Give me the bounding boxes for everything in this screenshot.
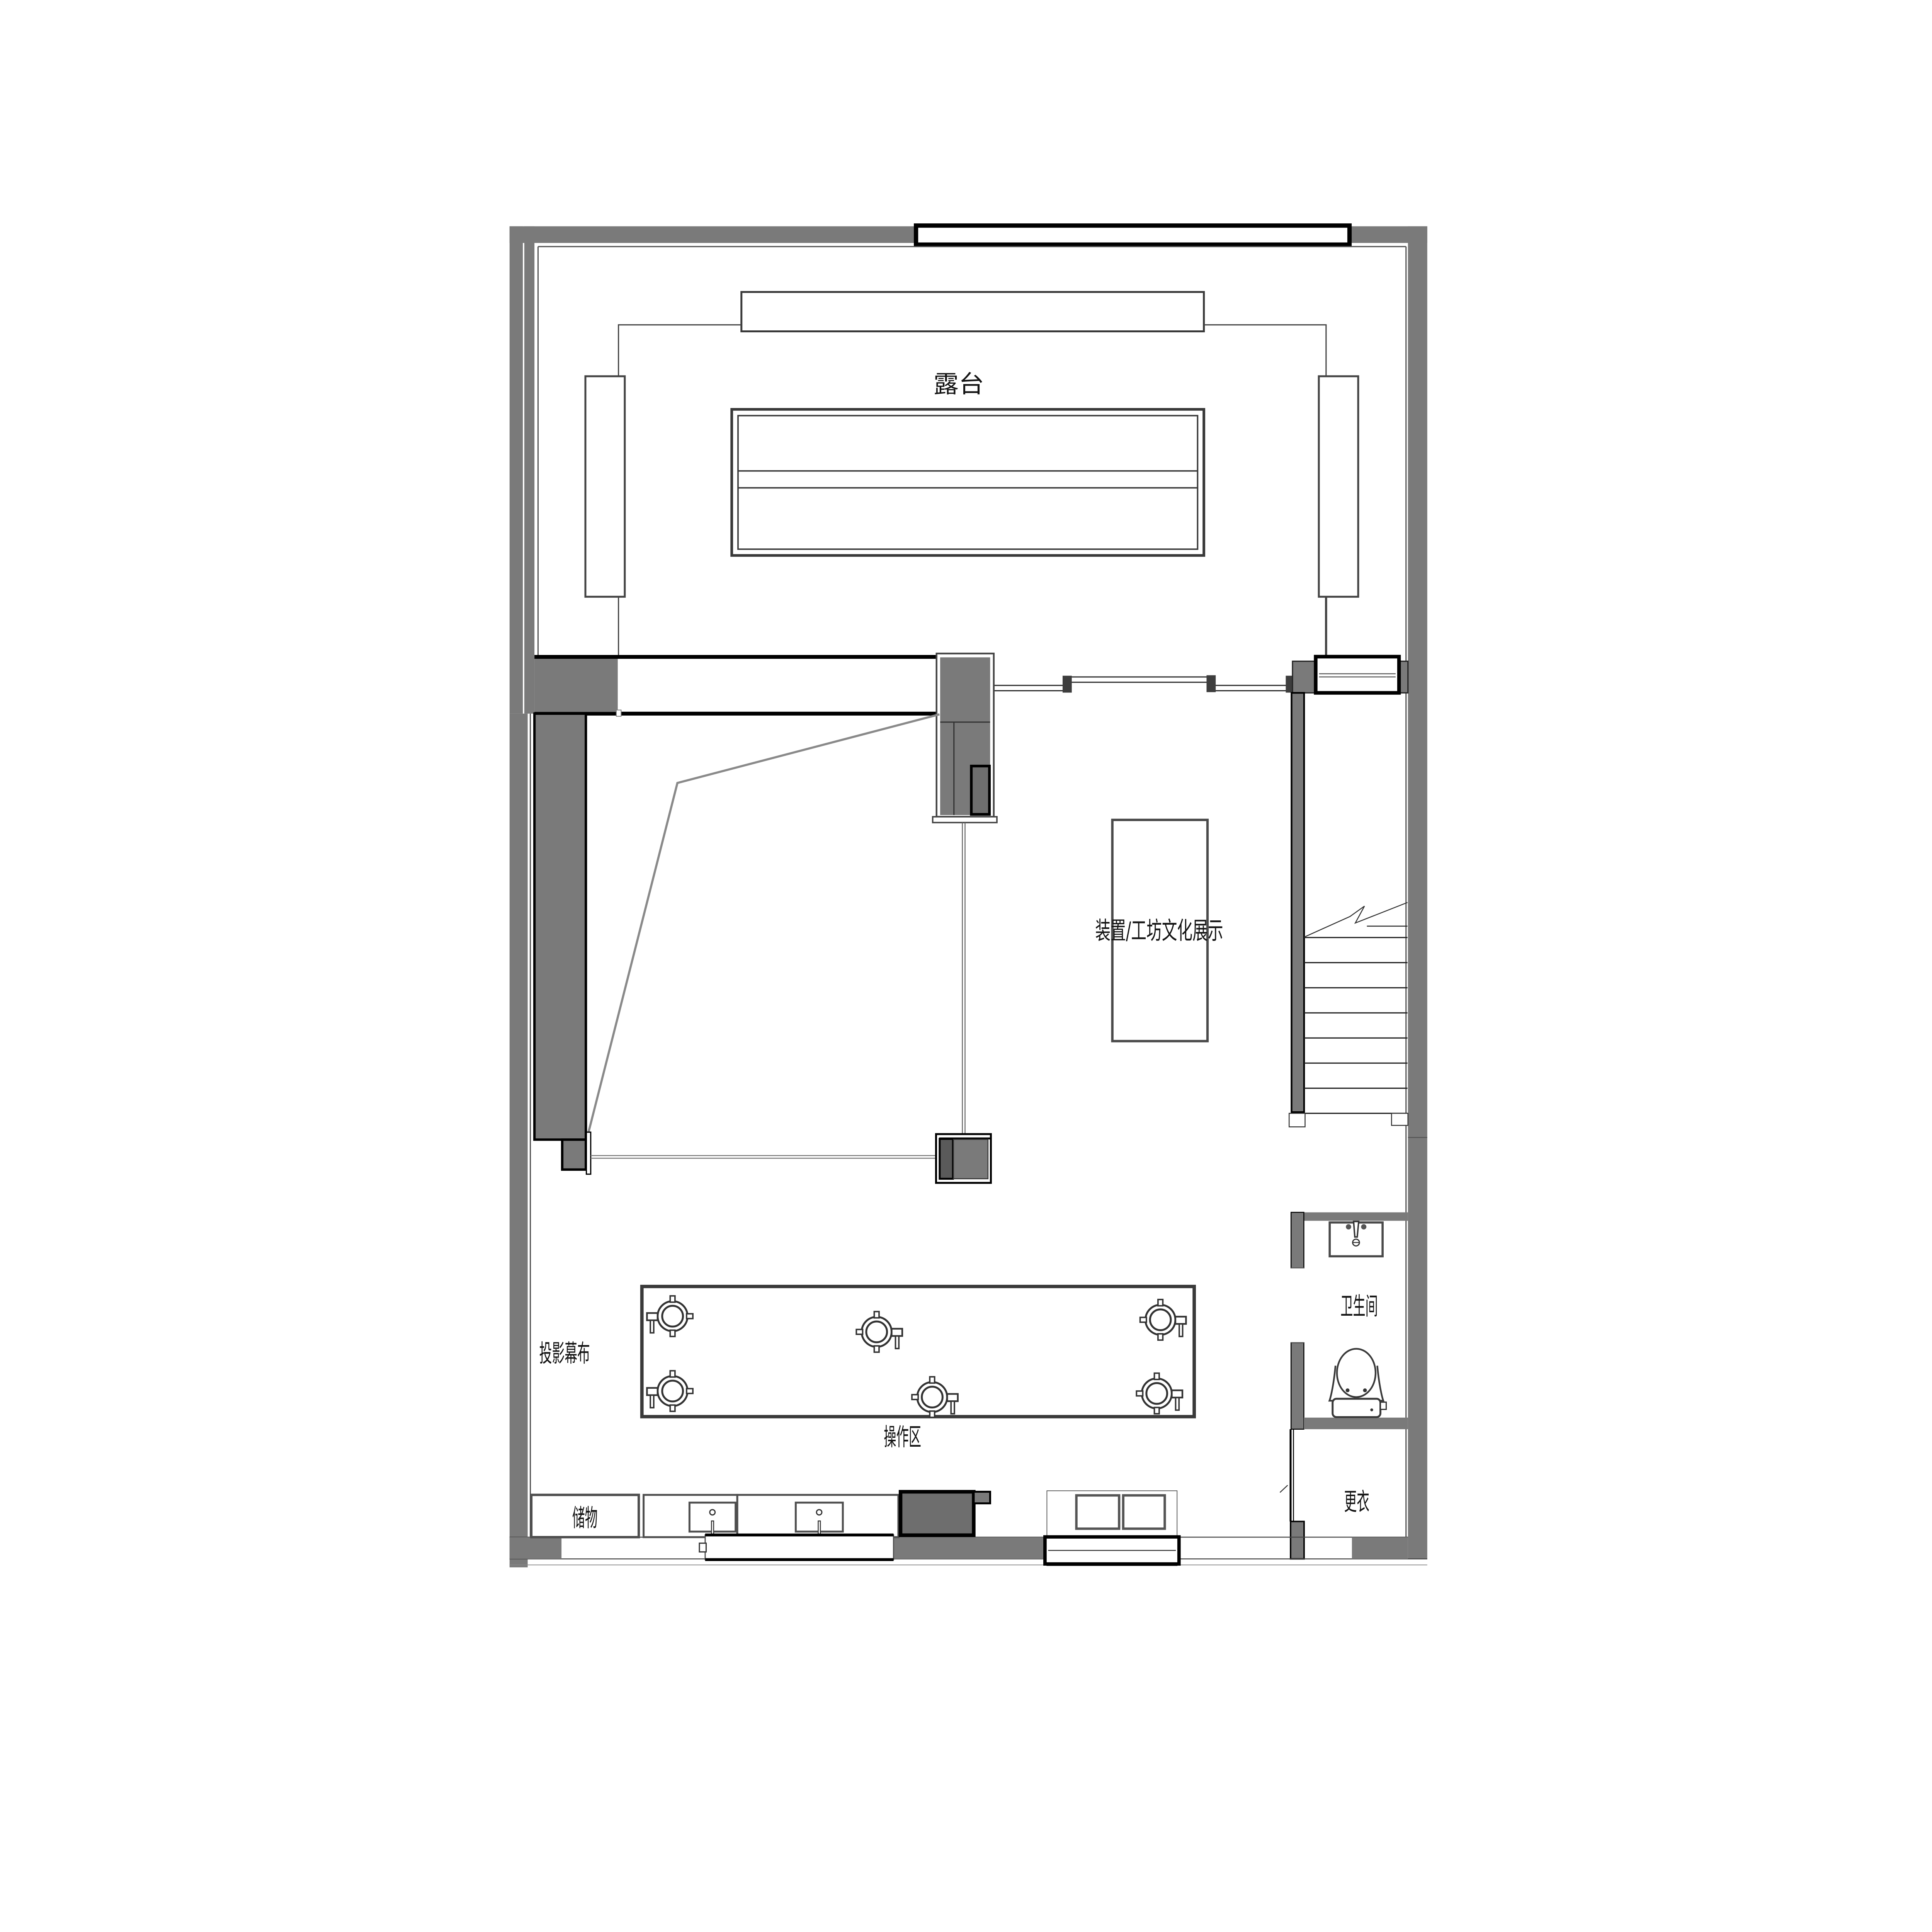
side-table-b xyxy=(1123,1495,1165,1529)
storage-label: 储物 xyxy=(572,1504,598,1532)
top-wall-left xyxy=(510,226,916,243)
band-pier-right-a xyxy=(1293,661,1316,693)
floor-plan-svg: 露台 xyxy=(241,0,1690,1932)
stair-newel-right xyxy=(1391,1113,1408,1125)
terrace-planter-left xyxy=(585,376,625,597)
storage-cabinet: 储物 xyxy=(531,1495,639,1537)
terrace-zone: 露台 xyxy=(585,292,1358,658)
band-break-symbol xyxy=(616,710,621,716)
operation-label: 操作区 xyxy=(884,1423,921,1451)
stair-break-line xyxy=(1304,903,1408,937)
terrace-bench-bar xyxy=(742,292,1204,332)
projection-label: 投影幕布 xyxy=(539,1339,590,1367)
bench-tab xyxy=(699,1543,706,1552)
operation-area: 操作区 xyxy=(642,1286,1194,1451)
changing-label: 更衣 xyxy=(1344,1488,1369,1516)
terrace-label: 露台 xyxy=(934,370,984,398)
exhibition-island: 装置/工坊文化展示 xyxy=(1095,820,1223,1041)
sink-counter-a xyxy=(644,1495,738,1537)
side-table-a xyxy=(1077,1495,1119,1529)
bathroom-sink xyxy=(1330,1221,1383,1256)
changing-pier xyxy=(1291,1522,1304,1559)
stair-wall xyxy=(1292,693,1304,1112)
projection-cone xyxy=(588,714,939,1132)
projection-screen xyxy=(587,1132,591,1174)
door-swing-tick xyxy=(1280,1485,1288,1493)
center-column xyxy=(933,653,997,1134)
top-wall-window xyxy=(916,226,1350,245)
kitchen-unit-dark xyxy=(901,1492,990,1536)
projector-unit xyxy=(936,1134,991,1183)
terrace-table xyxy=(732,409,1204,555)
column-duct xyxy=(971,766,990,815)
column-base-plate xyxy=(933,817,997,823)
bottom-wall-gray-c xyxy=(1352,1537,1408,1559)
bathroom-south-wall xyxy=(1304,1418,1408,1429)
left-wall-lower xyxy=(510,714,528,1567)
outdoor-bench xyxy=(699,1535,894,1560)
glass-wall-mullions xyxy=(1063,675,1294,693)
bottom-wall-gray-a xyxy=(510,1537,561,1559)
toilet xyxy=(1330,1349,1386,1417)
stairs xyxy=(1289,693,1408,1127)
stair-treads xyxy=(1304,926,1408,1113)
bathroom-west-pier-b xyxy=(1291,1343,1304,1429)
projection-screen-wall xyxy=(534,714,586,1140)
bottom-wall-gray-b xyxy=(886,1537,1044,1559)
band-pier xyxy=(534,659,618,712)
floor-plan-sheet: 露台 xyxy=(241,0,1690,1932)
left-wall-upper xyxy=(510,226,534,714)
bathroom: 卫生间 xyxy=(1291,1213,1408,1429)
glass-wall xyxy=(994,677,1289,691)
bathroom-west-pier-a xyxy=(1291,1213,1304,1268)
terrace-planter-right xyxy=(1319,376,1358,597)
exhibition-label: 装置/工坊文化展示 xyxy=(1095,917,1223,945)
bathroom-label: 卫生间 xyxy=(1340,1292,1378,1320)
right-wall xyxy=(1408,226,1427,1559)
bottom-wall xyxy=(510,1537,1427,1565)
band-window xyxy=(1316,656,1399,693)
stair-newel-left xyxy=(1289,1113,1305,1127)
screen-wall-return xyxy=(562,1139,586,1170)
bathroom-north-wall xyxy=(1304,1213,1408,1221)
sink-counter-b xyxy=(737,1495,898,1537)
projection-system: 投影幕布 xyxy=(534,714,991,1367)
